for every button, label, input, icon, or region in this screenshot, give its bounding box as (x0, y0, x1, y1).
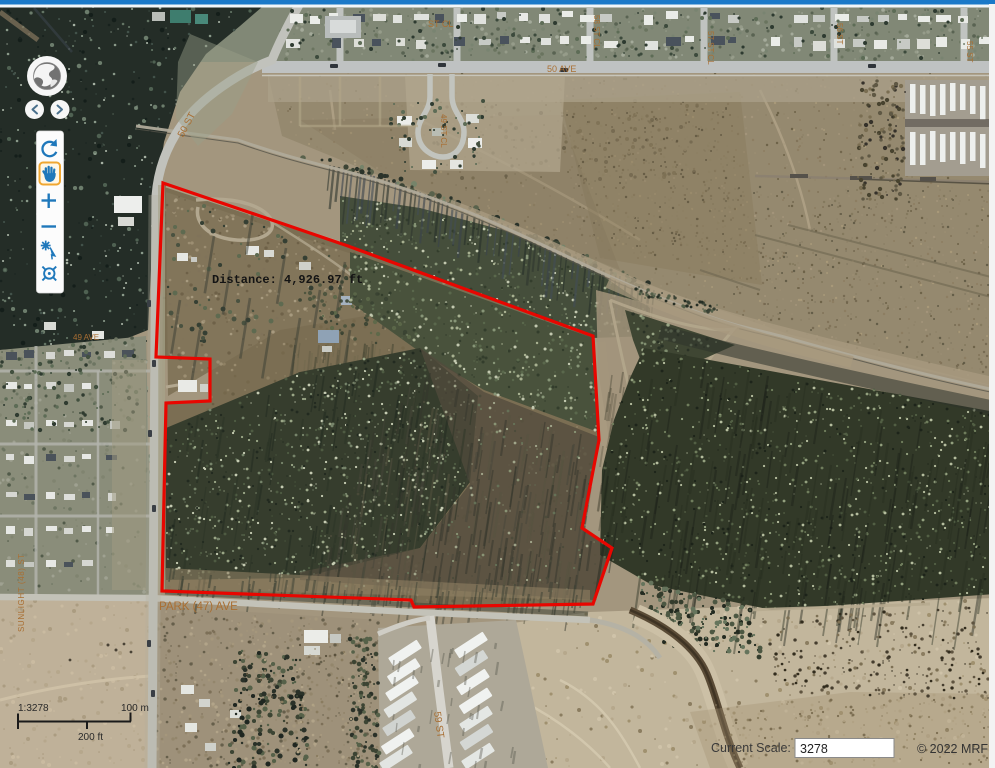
svg-text:49 ST CL: 49 ST CL (439, 114, 448, 148)
svg-text:3278: 3278 (800, 742, 828, 756)
svg-text:50 AVE: 50 AVE (547, 64, 576, 74)
svg-text:57 ST CL: 57 ST CL (706, 31, 715, 65)
svg-text:SUNLIGHT (48) ST: SUNLIGHT (48) ST (17, 553, 26, 632)
svg-text:PARK (47) AVE: PARK (47) AVE (159, 601, 238, 613)
svg-text:58 ST CL: 58 ST CL (592, 15, 601, 49)
svg-text:1:3278: 1:3278 (18, 703, 49, 714)
svg-text:ST CL: ST CL (428, 19, 453, 29)
svg-text:Current Scale:: Current Scale: (711, 741, 791, 755)
svg-text:49 AVE: 49 AVE (73, 333, 99, 342)
svg-text:56 ST: 56 ST (835, 23, 844, 44)
svg-text:55 ST: 55 ST (965, 41, 974, 62)
svg-text:200 ft: 200 ft (78, 732, 103, 743)
svg-text:Distance: 4,926.97 ft: Distance: 4,926.97 ft (212, 273, 363, 287)
svg-text:100 m: 100 m (121, 703, 149, 714)
svg-text:© 2022 MRF: © 2022 MRF (917, 742, 988, 756)
